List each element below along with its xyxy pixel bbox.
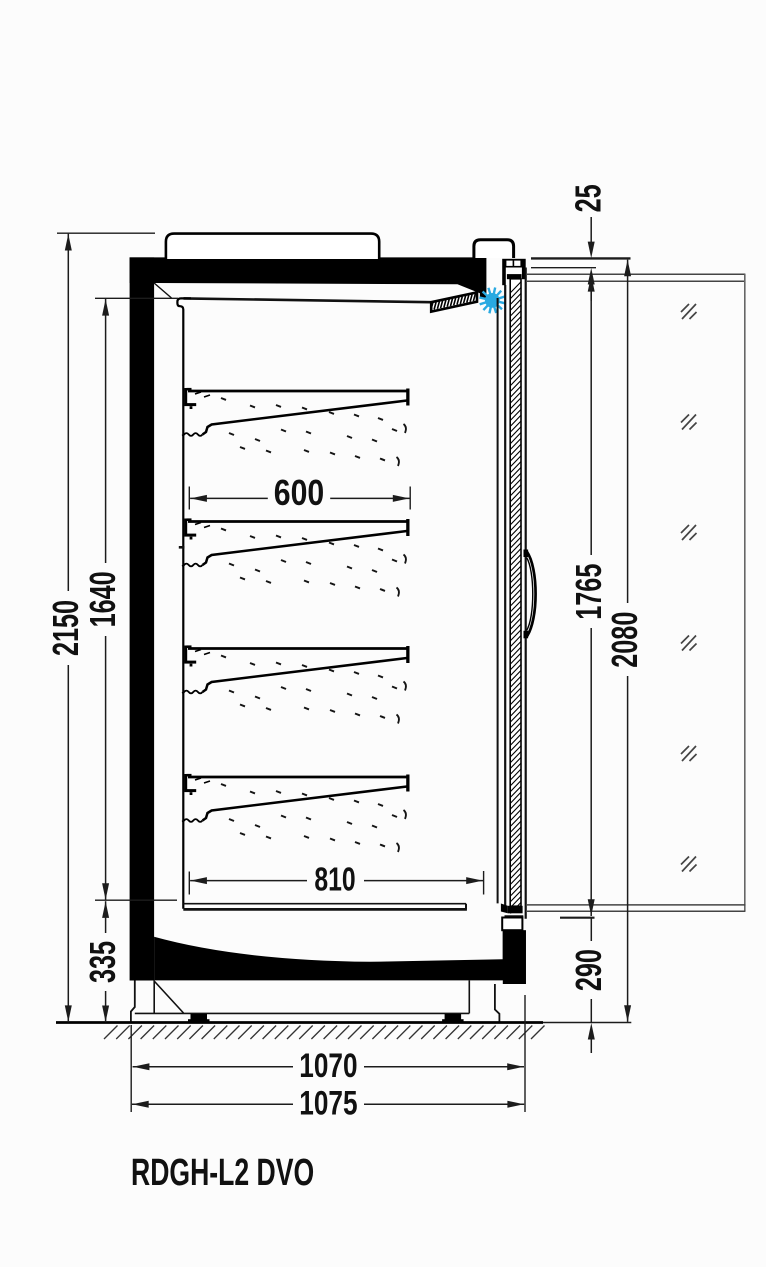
svg-text:RDGH-L2 DVO: RDGH-L2 DVO <box>131 1150 314 1193</box>
svg-text:1765: 1765 <box>568 564 609 620</box>
svg-text:1640: 1640 <box>83 571 124 627</box>
svg-text:290: 290 <box>568 949 609 991</box>
svg-text:1070: 1070 <box>299 1048 357 1085</box>
svg-text:25: 25 <box>568 184 609 212</box>
svg-text:600: 600 <box>274 473 324 513</box>
svg-text:2150: 2150 <box>45 600 86 656</box>
svg-text:2080: 2080 <box>605 612 646 668</box>
svg-text:810: 810 <box>314 862 355 898</box>
svg-text:1075: 1075 <box>299 1085 357 1122</box>
svg-text:335: 335 <box>83 941 124 983</box>
